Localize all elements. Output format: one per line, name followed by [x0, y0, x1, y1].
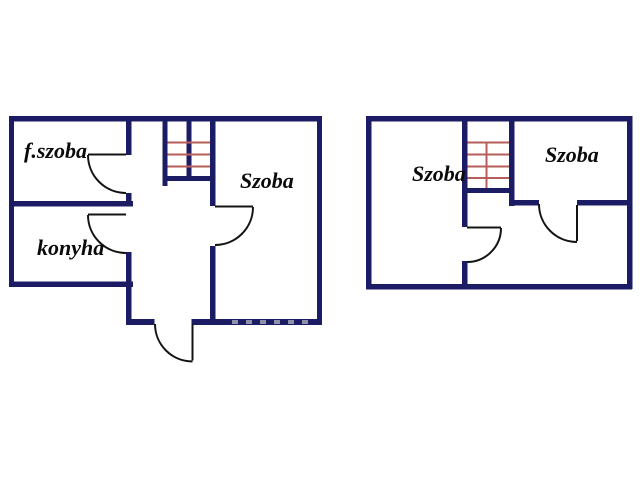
svg-text:Szoba: Szoba: [412, 161, 466, 186]
svg-text:konyha: konyha: [37, 235, 104, 260]
svg-text:Szoba: Szoba: [545, 142, 599, 167]
svg-text:Szoba: Szoba: [240, 168, 294, 193]
svg-text:f.szoba: f.szoba: [24, 138, 87, 163]
